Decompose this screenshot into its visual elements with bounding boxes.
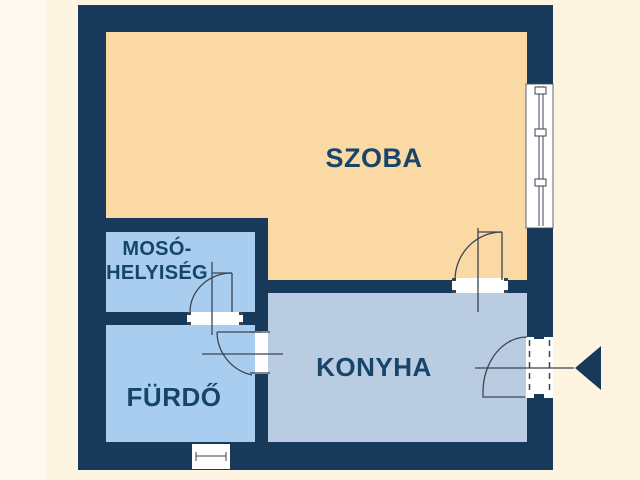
window-crossbar (535, 129, 546, 136)
door-jamb-tick (187, 312, 191, 315)
room-label-moso-line2: HELYISÉG (106, 261, 208, 284)
room-label-szoba: SZOBA (326, 143, 423, 173)
room-label-furdo: FÜRDŐ (127, 382, 222, 412)
window-szoba (526, 84, 553, 228)
entrance-stop-block (534, 394, 544, 398)
window-crossbar (535, 179, 546, 186)
room-label-moso-line1: MOSÓ- (122, 236, 191, 260)
room-label-konyha: KONYHA (316, 352, 432, 382)
door-opening (187, 312, 243, 325)
door-jamb-tick (504, 290, 508, 293)
door-jamb-tick (187, 322, 191, 325)
entrance-stop-block (534, 335, 544, 339)
door-jamb-tick (452, 290, 456, 293)
door-jamb-tick (239, 322, 243, 325)
floor-plan: SZOBA MOSÓ- HELYISÉG FÜRDŐ KONYHA (0, 0, 640, 480)
window-crossbar (535, 87, 546, 94)
door-opening (255, 331, 268, 374)
door-jamb-tick (504, 278, 508, 281)
door-jamb-tick (239, 312, 243, 315)
background-edge-highlight (0, 0, 46, 480)
window-furdo (192, 444, 230, 469)
door-opening (452, 278, 508, 293)
